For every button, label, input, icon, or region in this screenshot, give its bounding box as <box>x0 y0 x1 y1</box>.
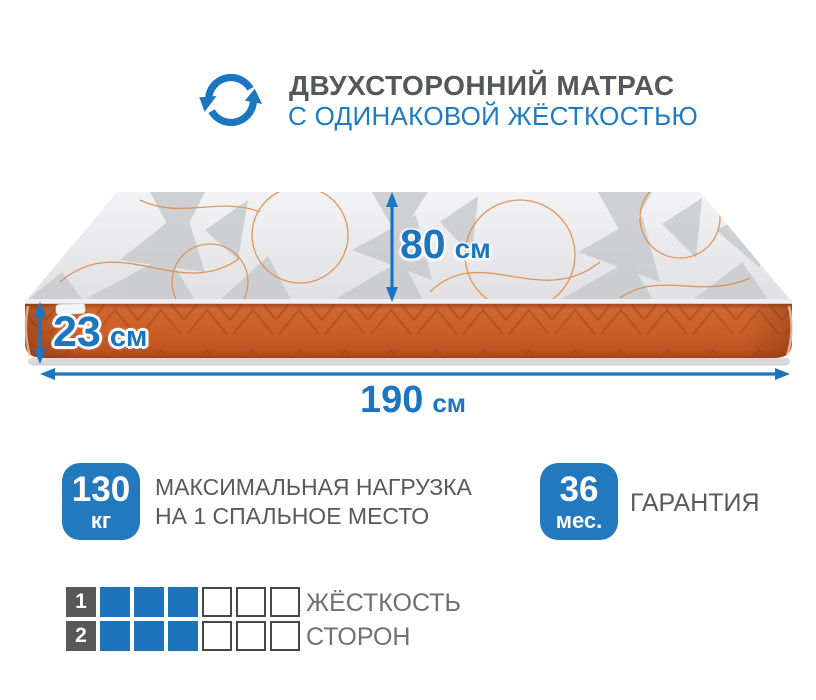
max-load-badge: 130 кг <box>62 463 140 540</box>
firmness-cell-empty <box>202 621 232 651</box>
firmness-cell-filled <box>134 621 164 651</box>
firmness-label-line1: ЖЁСТКОСТЬ <box>306 586 461 620</box>
firmness-cell-filled <box>134 587 164 617</box>
length-dimension-label: 190 см <box>308 381 518 419</box>
max-load-label: МАКСИМАЛЬНАЯ НАГРУЗКА НА 1 СПАЛЬНОЕ МЕСТ… <box>155 473 472 531</box>
width-dimension-label: 80 см <box>400 224 491 265</box>
max-load-label-line2: НА 1 СПАЛЬНОЕ МЕСТО <box>155 502 472 531</box>
height-dimension-label: 23 см <box>53 311 147 354</box>
firmness-cell-filled <box>168 587 198 617</box>
warranty-value: 36 <box>560 472 599 507</box>
warranty-unit: мес. <box>556 510 603 532</box>
width-unit: см <box>455 235 491 263</box>
warranty-badge: 36 мес. <box>540 463 618 540</box>
firmness-cell-empty <box>202 587 232 617</box>
firmness-cell-empty <box>236 621 266 651</box>
max-load-unit: кг <box>91 510 111 532</box>
firmness-row: 2 <box>66 621 300 651</box>
page-subtitle: С ОДИНАКОВОЙ ЖЁСТКОСТЬЮ <box>288 101 698 132</box>
page-title: ДВУХСТОРОННИЙ МАТРАС <box>289 70 675 102</box>
length-value: 190 <box>360 381 423 419</box>
firmness-row-number: 2 <box>66 621 96 651</box>
height-value: 23 <box>53 311 101 354</box>
max-load-value: 130 <box>72 472 130 507</box>
firmness-scale-rows: 12 <box>66 587 300 655</box>
firmness-row: 1 <box>66 587 300 617</box>
height-unit: см <box>110 323 148 352</box>
rotate-arrows-icon <box>198 63 264 137</box>
warranty-label: ГАРАНТИЯ <box>630 489 760 518</box>
firmness-cell-filled <box>168 621 198 651</box>
firmness-scale-label: ЖЁСТКОСТЬ СТОРОН <box>306 586 461 654</box>
length-unit: см <box>432 390 466 416</box>
firmness-cell-filled <box>100 587 130 617</box>
mattress-bottom-piping <box>28 358 790 365</box>
mattress-infographic: ДВУХСТОРОННИЙ МАТРАС С ОДИНАКОВОЙ ЖЁСТКО… <box>0 0 816 700</box>
firmness-cell-empty <box>270 621 300 651</box>
firmness-label-line2: СТОРОН <box>306 620 461 654</box>
firmness-row-number: 1 <box>66 587 96 617</box>
width-value: 80 <box>400 224 446 265</box>
firmness-cell-filled <box>100 621 130 651</box>
firmness-cell-empty <box>270 587 300 617</box>
firmness-cell-empty <box>236 587 266 617</box>
max-load-label-line1: МАКСИМАЛЬНАЯ НАГРУЗКА <box>155 473 472 502</box>
mattress-illustration <box>0 160 816 410</box>
